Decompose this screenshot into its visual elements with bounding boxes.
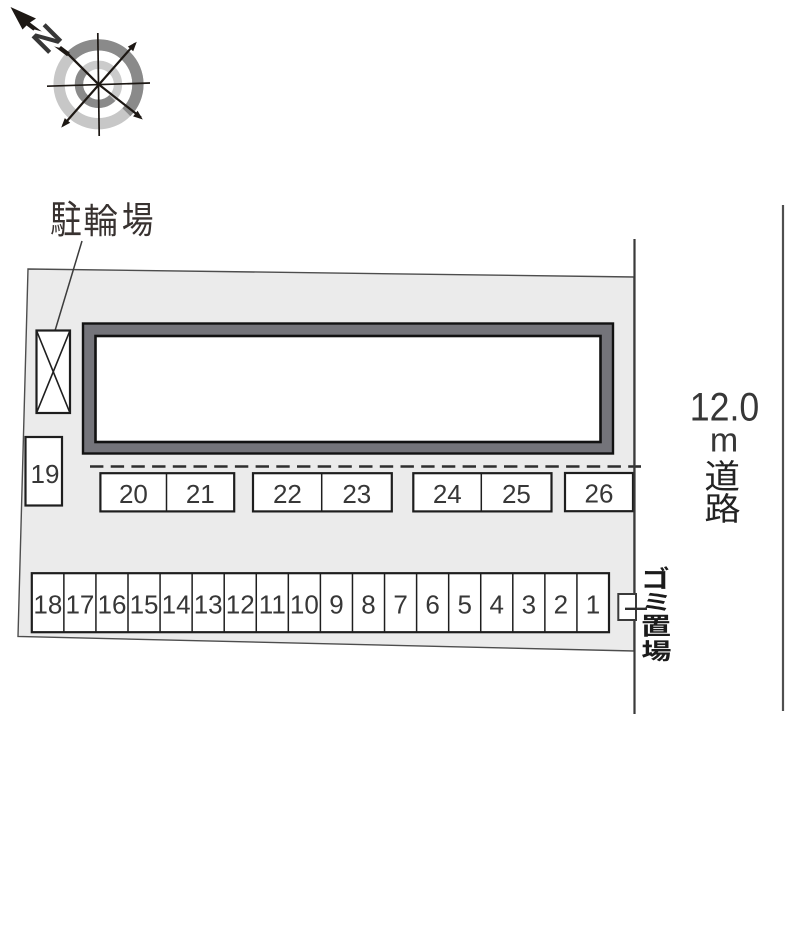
svg-text:2: 2 <box>554 590 568 620</box>
svg-text:15: 15 <box>130 590 159 620</box>
svg-text:11: 11 <box>259 590 286 620</box>
svg-text:26: 26 <box>585 479 614 509</box>
svg-text:5: 5 <box>457 590 471 620</box>
svg-text:20: 20 <box>119 479 148 509</box>
svg-text:13: 13 <box>194 590 223 620</box>
svg-text:10: 10 <box>290 590 319 620</box>
svg-text:9: 9 <box>329 590 343 620</box>
svg-text:6: 6 <box>425 590 439 620</box>
svg-text:17: 17 <box>65 590 94 620</box>
svg-text:3: 3 <box>522 590 536 620</box>
svg-text:12: 12 <box>226 590 255 620</box>
svg-text:8: 8 <box>361 590 375 620</box>
svg-text:N: N <box>25 17 69 61</box>
svg-text:21: 21 <box>186 479 215 509</box>
svg-text:m: m <box>710 422 738 460</box>
svg-text:7: 7 <box>393 590 407 620</box>
svg-text:1: 1 <box>586 590 600 620</box>
svg-text:25: 25 <box>502 479 531 509</box>
svg-text:14: 14 <box>162 590 191 620</box>
svg-text:19: 19 <box>31 459 60 489</box>
svg-text:4: 4 <box>490 590 504 620</box>
svg-text:18: 18 <box>33 590 62 620</box>
svg-text:23: 23 <box>342 479 371 509</box>
svg-text:24: 24 <box>433 479 462 509</box>
svg-text:16: 16 <box>98 590 127 620</box>
svg-text:22: 22 <box>273 479 302 509</box>
